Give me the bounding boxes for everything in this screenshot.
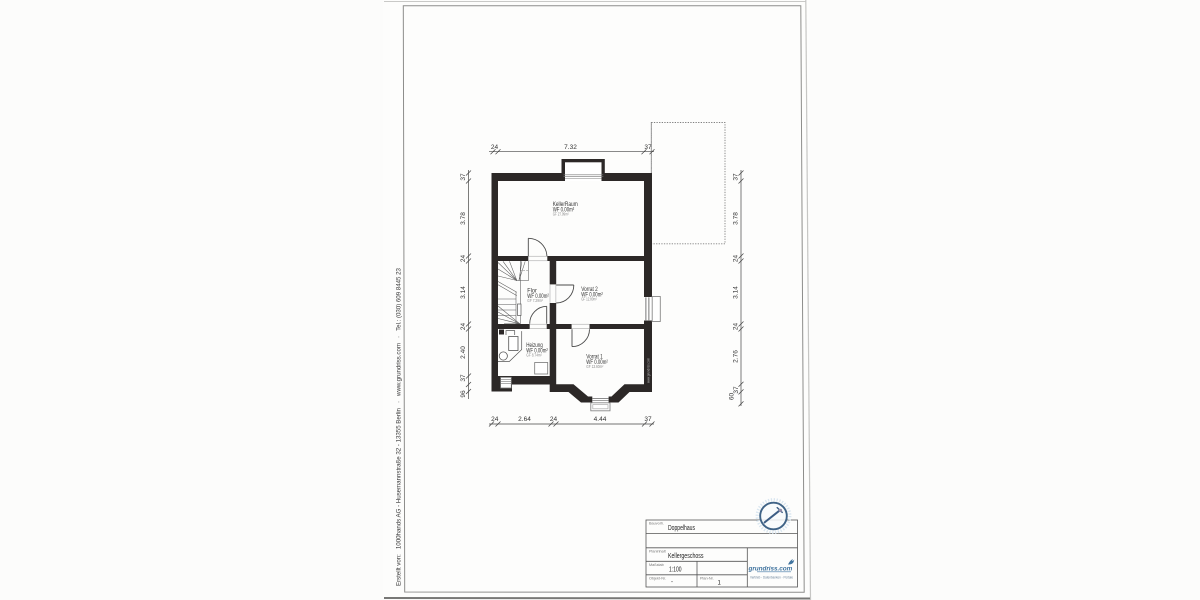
svg-text:24: 24 <box>460 255 467 263</box>
svg-text:2.76: 2.76 <box>732 350 739 363</box>
svg-text:3.78: 3.78 <box>460 212 467 225</box>
svg-text:Kellergeschoss: Kellergeschoss <box>668 553 704 560</box>
svg-text:37: 37 <box>733 386 740 394</box>
svg-text:60: 60 <box>729 393 736 401</box>
svg-text:-: - <box>671 580 673 586</box>
svg-text:24: 24 <box>550 416 558 423</box>
svg-text:Erstellt von: 1000hands AG -: Erstellt von: 1000hands AG - Husemannstr… <box>396 267 403 586</box>
svg-text:3.14: 3.14 <box>732 286 739 299</box>
svg-text:Planinhalt: Planinhalt <box>649 549 667 553</box>
svg-text:3.14: 3.14 <box>460 286 467 299</box>
svg-text:37: 37 <box>732 173 739 181</box>
svg-text:Vertrieb - Datenbanken - Porta: Vertrieb - Datenbanken - Portale <box>750 575 793 579</box>
svg-text:24: 24 <box>491 144 499 151</box>
svg-text:Doppelhaus: Doppelhaus <box>668 525 695 532</box>
svg-text:Bauvorh.: Bauvorh. <box>649 522 664 526</box>
svg-text:Objekt-Nr.: Objekt-Nr. <box>649 576 666 580</box>
svg-text:24: 24 <box>732 255 739 263</box>
svg-text:24: 24 <box>732 323 739 331</box>
svg-text:Plan-Nr.: Plan-Nr. <box>700 576 714 580</box>
svg-text:Maßstab: Maßstab <box>649 563 664 567</box>
svg-text:96: 96 <box>460 390 467 398</box>
svg-text:37: 37 <box>644 144 652 151</box>
svg-text:7.32: 7.32 <box>564 144 577 151</box>
svg-text:37: 37 <box>460 374 467 382</box>
svg-text:GF 8.74m²: GF 8.74m² <box>526 353 542 358</box>
svg-text:GF 27.09m²: GF 27.09m² <box>553 212 569 217</box>
svg-text:24: 24 <box>491 416 499 423</box>
svg-text:www.grundriss.com: www.grundriss.com <box>647 358 651 383</box>
svg-text:GF 7.29m²: GF 7.29m² <box>527 298 543 303</box>
svg-text:37: 37 <box>460 173 467 181</box>
svg-text:2.64: 2.64 <box>518 416 531 423</box>
svg-text:GF 13.60m²: GF 13.60m² <box>586 364 603 369</box>
svg-text:GF 12.80m²: GF 12.80m² <box>581 296 597 301</box>
svg-text:3.78: 3.78 <box>732 212 739 225</box>
svg-text:1:100: 1:100 <box>669 567 682 574</box>
svg-text:37: 37 <box>644 416 652 423</box>
svg-text:2.40: 2.40 <box>460 346 467 359</box>
svg-text:4.44: 4.44 <box>594 416 607 423</box>
svg-text:24: 24 <box>460 323 467 331</box>
